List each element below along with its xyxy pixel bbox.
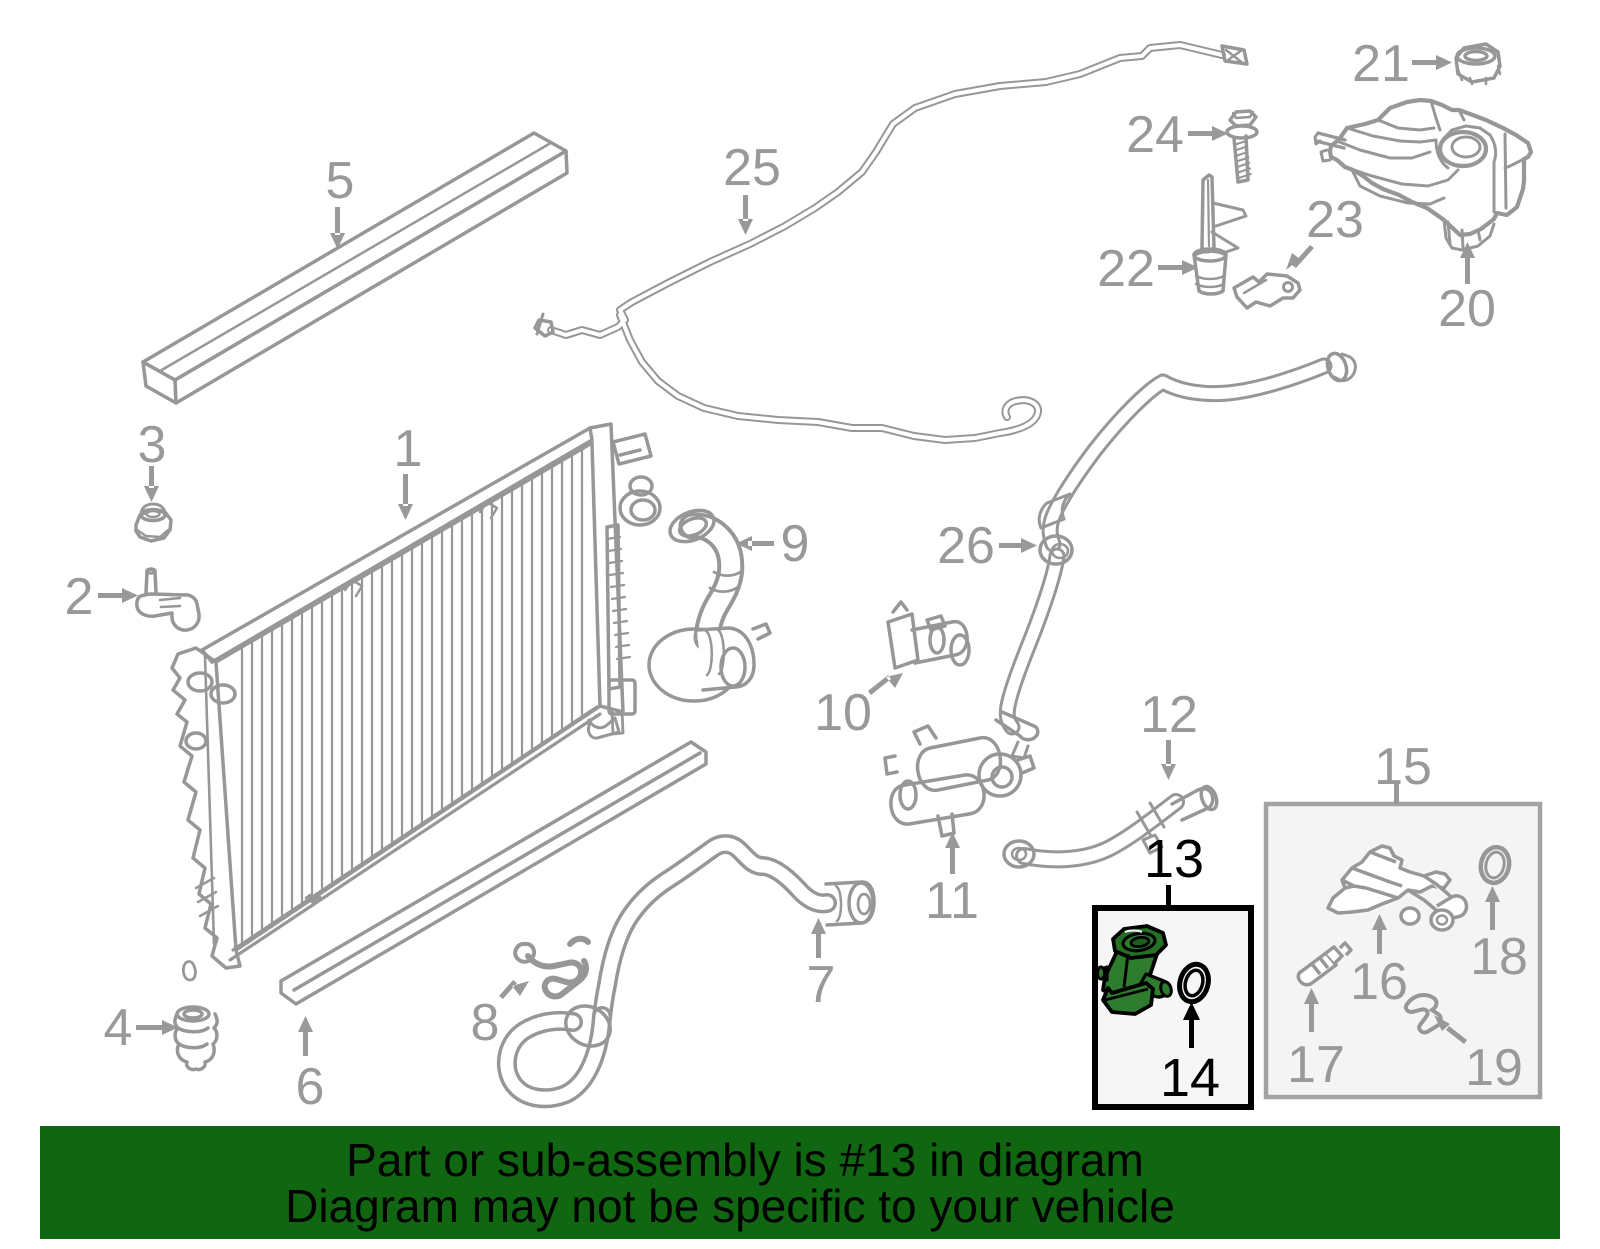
svg-text:14: 14 bbox=[1160, 1048, 1220, 1108]
svg-text:22: 22 bbox=[1097, 240, 1155, 298]
svg-text:13: 13 bbox=[1144, 829, 1204, 889]
svg-text:26: 26 bbox=[937, 517, 995, 575]
svg-text:19: 19 bbox=[1465, 1039, 1523, 1097]
svg-text:Diagram may not be specific to: Diagram may not be specific to your vehi… bbox=[285, 1180, 1175, 1232]
svg-text:9: 9 bbox=[781, 515, 810, 573]
svg-text:24: 24 bbox=[1126, 106, 1184, 164]
svg-text:12: 12 bbox=[1140, 686, 1198, 744]
svg-text:2: 2 bbox=[65, 568, 94, 626]
svg-text:21: 21 bbox=[1352, 35, 1410, 93]
svg-text:10: 10 bbox=[814, 684, 872, 742]
svg-text:8: 8 bbox=[471, 994, 500, 1052]
svg-text:17: 17 bbox=[1287, 1036, 1345, 1094]
svg-text:4: 4 bbox=[104, 999, 133, 1057]
svg-text:11: 11 bbox=[925, 872, 979, 930]
svg-text:23: 23 bbox=[1306, 191, 1364, 249]
svg-text:6: 6 bbox=[296, 1058, 325, 1116]
svg-text:1: 1 bbox=[394, 420, 423, 478]
svg-text:3: 3 bbox=[138, 416, 167, 474]
svg-text:Part or sub-assembly is #13 in: Part or sub-assembly is #13 in diagram bbox=[346, 1134, 1144, 1186]
svg-text:16: 16 bbox=[1350, 953, 1408, 1011]
svg-text:15: 15 bbox=[1374, 738, 1432, 796]
svg-text:18: 18 bbox=[1470, 928, 1528, 986]
svg-text:7: 7 bbox=[807, 956, 836, 1014]
svg-text:25: 25 bbox=[723, 139, 781, 197]
svg-text:5: 5 bbox=[326, 152, 355, 210]
svg-text:20: 20 bbox=[1438, 280, 1496, 338]
